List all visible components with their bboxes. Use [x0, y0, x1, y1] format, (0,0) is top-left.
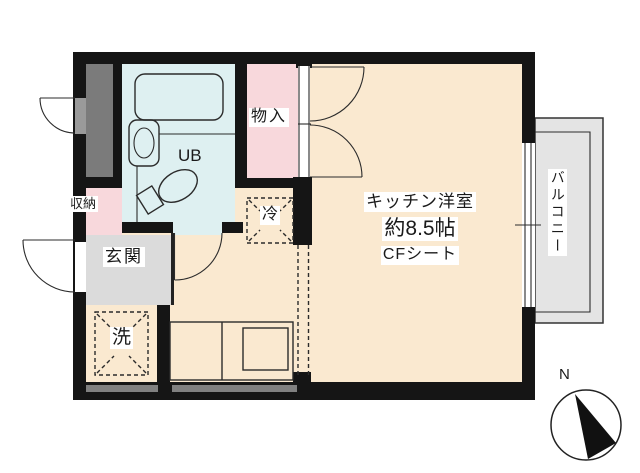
main-room-name: キッチン洋室 — [364, 192, 476, 212]
wall-shaft-bottom — [86, 177, 122, 188]
ub-door-opening — [173, 222, 222, 235]
wall-top — [73, 52, 535, 64]
main-room-labels: キッチン洋室 約8.5帖 CFシート — [330, 192, 510, 265]
unit-bath-label: UB — [176, 146, 204, 166]
washer-label: 洗 — [110, 327, 133, 349]
closet-label: 物入 — [249, 108, 289, 127]
main-room-flooring: CFシート — [381, 246, 459, 265]
wall-shaft-right — [113, 64, 122, 188]
upper-left-door-opening — [75, 98, 86, 134]
storage-label: 収納 — [68, 196, 98, 212]
closet-door-opening — [298, 66, 310, 178]
floor-plan: 物入 UB キッチン洋室 約8.5帖 CFシート バルコニー 収納 玄関 洗 冷… — [0, 0, 640, 473]
bottom-wall-inset-right — [172, 385, 297, 392]
balcony-label: バルコニー — [548, 169, 567, 256]
balcony-deck — [535, 118, 603, 323]
wall-ub-right — [235, 64, 247, 188]
entrance-door-opening — [75, 242, 86, 292]
entrance-door-arc — [23, 240, 75, 292]
entrance-label: 玄関 — [103, 247, 145, 267]
bottom-wall-inset-left — [86, 385, 158, 392]
wall-kitchen-divider-top — [293, 177, 312, 245]
wall-laundry-right — [157, 305, 170, 382]
entrance-floor — [86, 235, 172, 305]
floor-plan-drawing — [0, 0, 640, 473]
upper-left-door-arc — [40, 98, 75, 133]
compass-north-label: N — [557, 366, 572, 384]
entrance-step-edge — [171, 233, 174, 305]
main-room-size: 約8.5帖 — [382, 217, 457, 241]
service-shaft — [86, 64, 113, 177]
fridge-label: 冷 — [260, 206, 280, 225]
